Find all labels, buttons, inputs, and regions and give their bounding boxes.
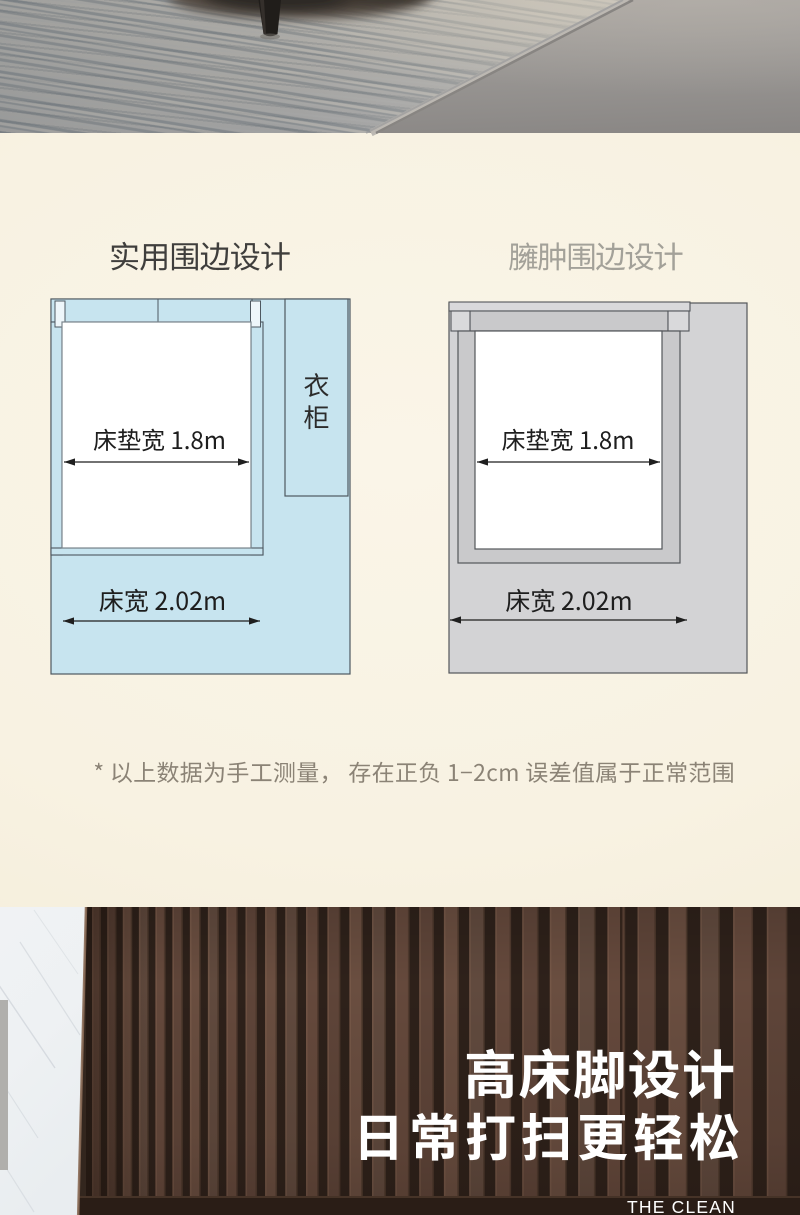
svg-text:THE CLEAN: THE CLEAN (627, 1197, 736, 1215)
